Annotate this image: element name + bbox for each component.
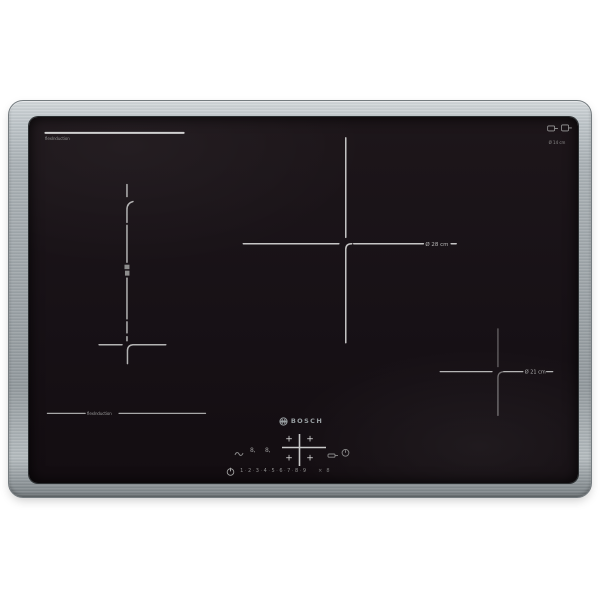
level-dot: · [269,469,270,473]
product-photo: Ø 28 cm Ø 21 cm Ø 14 cm [0,0,600,600]
power-level-9[interactable]: 9 [303,469,306,474]
bosch-logo: BOSCH [265,416,337,426]
timer-icon[interactable] [341,448,350,457]
pan-icon [548,125,572,131]
level-dot: · [284,469,285,473]
flex-zone-label-bottom: flexInduction [87,412,112,416]
zone-plus-top-right[interactable]: + [306,435,314,445]
right-zone-diameter-label: Ø 21 cm [525,369,546,376]
power-level-2[interactable]: 2 [248,469,251,474]
power-icon[interactable] [226,467,235,476]
zone-markings: Ø 28 cm Ø 21 cm Ø 14 cm [29,117,578,483]
cooktop-frame: Ø 28 cm Ø 21 cm Ø 14 cm [8,100,592,498]
bosch-anchor-icon [279,417,288,426]
brand-name: BOSCH [291,418,323,425]
power-level-4[interactable]: 4 [264,469,267,474]
flex-zone-marking [99,185,166,364]
power-level-5[interactable]: 5 [271,469,274,474]
zone-plus-top-left[interactable]: + [285,435,293,445]
level-dot: · [300,469,301,473]
flex-zone-connector-mark [124,265,129,276]
power-level-7[interactable]: 7 [287,469,290,474]
power-level-strip[interactable]: 1 · 2 · 3 · 4 · 5 · 6 · 7 · 8 · 9 × 8 [226,466,332,476]
wipe-protection-icon[interactable] [234,449,244,458]
center-zone-diameter-label: Ø 28 cm [425,241,448,248]
level-dot: · [292,469,293,473]
frying-sensor-icon[interactable] [327,451,339,459]
power-level-6[interactable]: 6 [279,469,282,474]
level-dot: · [253,469,254,473]
flex-zone-label-top: flexInduction [45,137,70,141]
extra-key-1[interactable]: × [318,469,322,474]
level-dot: · [261,469,262,473]
level-dot: · [245,469,246,473]
power-level-3[interactable]: 3 [256,469,259,474]
timer-display-left: 8, [250,448,255,454]
zone-plus-bottom-left[interactable]: + [285,454,293,464]
center-zone-cross [243,138,456,343]
extra-key-2[interactable]: 8 [326,469,329,474]
zone-plus-bottom-right[interactable]: + [306,454,314,464]
power-level-1[interactable]: 1 [240,469,243,474]
glass-surface: Ø 28 cm Ø 21 cm Ø 14 cm [29,117,578,483]
power-level-8[interactable]: 8 [295,469,298,474]
zone-selector-diagram[interactable]: + + + + [269,432,329,470]
top-right-caption: Ø 14 cm [549,140,566,145]
level-dot: · [276,469,277,473]
timer-display-right: 8, [265,448,270,454]
